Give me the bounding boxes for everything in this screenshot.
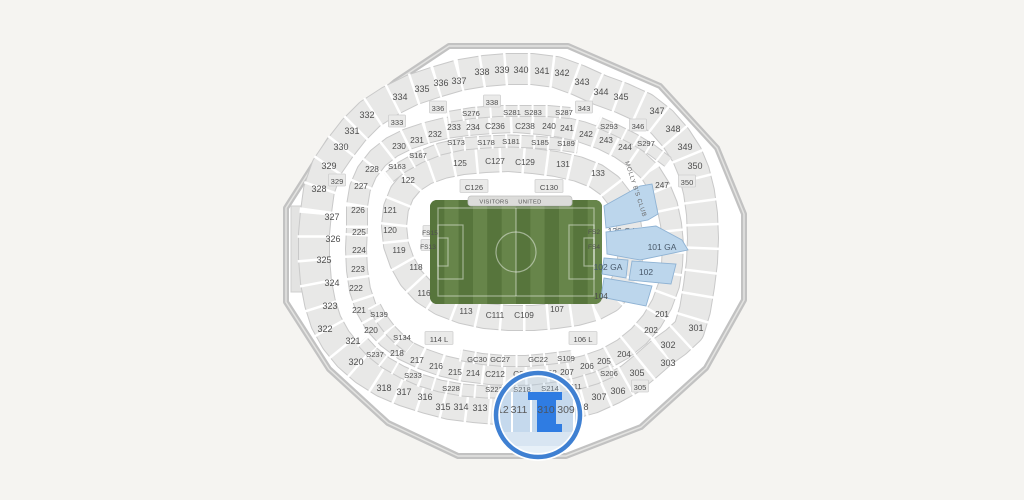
section-121[interactable]: 121 bbox=[383, 205, 397, 215]
section-345[interactable]: 345 bbox=[613, 92, 628, 102]
section-s237[interactable]: S237 bbox=[366, 350, 384, 359]
section-225[interactable]: 225 bbox=[352, 227, 366, 237]
section-104[interactable]: 104 bbox=[594, 291, 608, 301]
section-317[interactable]: 317 bbox=[396, 387, 411, 397]
section-341[interactable]: 341 bbox=[534, 66, 549, 76]
section-339[interactable]: 339 bbox=[494, 65, 509, 75]
section-315[interactable]: 315 bbox=[435, 402, 450, 412]
section-348[interactable]: 348 bbox=[665, 124, 680, 134]
section-s139[interactable]: S139 bbox=[370, 310, 388, 319]
section-s167[interactable]: S167 bbox=[409, 151, 427, 160]
section-328[interactable]: 328 bbox=[311, 184, 326, 194]
section-c238[interactable]: C238 bbox=[515, 121, 535, 131]
section-244[interactable]: 244 bbox=[618, 142, 632, 152]
section-347[interactable]: 347 bbox=[649, 106, 664, 116]
section-334[interactable]: 334 bbox=[392, 92, 407, 102]
section-206[interactable]: 206 bbox=[580, 361, 594, 371]
section-fs2[interactable]: FS2 bbox=[588, 229, 600, 236]
section-324[interactable]: 324 bbox=[324, 278, 339, 288]
section-s189[interactable]: S189 bbox=[557, 139, 575, 148]
section-c212[interactable]: C212 bbox=[485, 369, 505, 379]
section-125[interactable]: 125 bbox=[453, 158, 467, 168]
section-301[interactable]: 301 bbox=[688, 323, 703, 333]
section-204[interactable]: 204 bbox=[617, 349, 631, 359]
section-c127[interactable]: C127 bbox=[485, 156, 505, 166]
section-c236[interactable]: C236 bbox=[485, 121, 505, 131]
section-s178[interactable]: S178 bbox=[477, 138, 495, 147]
section-228[interactable]: 228 bbox=[365, 164, 379, 174]
section-343[interactable]: 343 bbox=[574, 77, 589, 87]
section-s297[interactable]: S297 bbox=[637, 139, 655, 148]
section-224[interactable]: 224 bbox=[352, 245, 366, 255]
section-106-l[interactable]: 106 L bbox=[573, 335, 592, 344]
section-202[interactable]: 202 bbox=[644, 325, 658, 335]
section-231[interactable]: 231 bbox=[410, 135, 424, 145]
section-122[interactable]: 122 bbox=[401, 175, 415, 185]
section-329[interactable]: 329 bbox=[321, 161, 336, 171]
section-234[interactable]: 234 bbox=[466, 122, 480, 132]
section-s283[interactable]: S283 bbox=[524, 108, 542, 117]
section-fs15[interactable]: FS15 bbox=[422, 230, 438, 237]
section-242[interactable]: 242 bbox=[579, 129, 593, 139]
section-207[interactable]: 207 bbox=[560, 367, 574, 377]
section-230[interactable]: 230 bbox=[392, 141, 406, 151]
section-342[interactable]: 342 bbox=[554, 68, 569, 78]
section-216[interactable]: 216 bbox=[429, 361, 443, 371]
section-335[interactable]: 335 bbox=[414, 84, 429, 94]
section-114-l[interactable]: 114 L bbox=[430, 335, 448, 344]
section-218[interactable]: 218 bbox=[390, 348, 404, 358]
section-c111[interactable]: C111 bbox=[486, 310, 505, 320]
soccer-field: VISITORSUNITED bbox=[430, 196, 602, 304]
section-s233[interactable]: S233 bbox=[404, 371, 422, 380]
section-331[interactable]: 331 bbox=[344, 126, 359, 136]
section-221[interactable]: 221 bbox=[352, 305, 366, 315]
section-205[interactable]: 205 bbox=[597, 356, 611, 366]
section-314[interactable]: 314 bbox=[453, 402, 468, 412]
section-113[interactable]: 113 bbox=[459, 306, 473, 316]
section-s109[interactable]: S109 bbox=[557, 354, 575, 363]
section-120[interactable]: 120 bbox=[383, 225, 397, 235]
section-c129[interactable]: C129 bbox=[515, 157, 535, 167]
section-322[interactable]: 322 bbox=[317, 324, 332, 334]
section-240[interactable]: 240 bbox=[542, 121, 556, 131]
section-247[interactable]: 247 bbox=[655, 180, 669, 190]
section-306[interactable]: 306 bbox=[610, 386, 625, 396]
section-318[interactable]: 318 bbox=[376, 383, 391, 393]
section-220[interactable]: 220 bbox=[364, 325, 378, 335]
section-344[interactable]: 344 bbox=[593, 87, 608, 97]
field-visitors-label: VISITORS bbox=[479, 200, 508, 206]
ga-label: 102 GA bbox=[594, 262, 623, 272]
section-307[interactable]: 307 bbox=[591, 392, 606, 402]
section-346[interactable]: 346 bbox=[632, 122, 645, 131]
section-223[interactable]: 223 bbox=[351, 264, 365, 274]
section-c130[interactable]: C130 bbox=[540, 183, 558, 192]
section-107[interactable]: 107 bbox=[550, 304, 564, 314]
section-232[interactable]: 232 bbox=[428, 129, 442, 139]
section-s293[interactable]: S293 bbox=[600, 122, 618, 131]
section-s287[interactable]: S287 bbox=[555, 108, 573, 117]
section-131[interactable]: 131 bbox=[556, 159, 570, 169]
section-349[interactable]: 349 bbox=[677, 142, 692, 152]
section-305[interactable]: 305 bbox=[634, 383, 647, 392]
section-316[interactable]: 316 bbox=[417, 392, 432, 402]
section-gc22[interactable]: GC22 bbox=[528, 355, 548, 364]
section-119[interactable]: 119 bbox=[392, 245, 406, 255]
section-336[interactable]: 336 bbox=[432, 104, 445, 113]
section-327[interactable]: 327 bbox=[324, 212, 339, 222]
section-s134[interactable]: S134 bbox=[393, 333, 411, 342]
section-133[interactable]: 133 bbox=[591, 168, 605, 178]
section-201[interactable]: 201 bbox=[655, 309, 669, 319]
section-gc27[interactable]: GC27 bbox=[490, 355, 510, 364]
section-s163[interactable]: S163 bbox=[388, 162, 406, 171]
section-fs13[interactable]: FS13 bbox=[420, 244, 436, 251]
section-330[interactable]: 330 bbox=[333, 142, 348, 152]
section-c126[interactable]: C126 bbox=[465, 183, 483, 192]
section-333[interactable]: 333 bbox=[391, 118, 404, 127]
section-s181[interactable]: S181 bbox=[502, 137, 520, 146]
section-329[interactable]: 329 bbox=[331, 177, 344, 186]
section-s228[interactable]: S228 bbox=[442, 384, 460, 393]
section-s281[interactable]: S281 bbox=[503, 108, 521, 117]
section-343[interactable]: 343 bbox=[578, 104, 591, 113]
magnified-section-310[interactable]: 310 bbox=[537, 404, 555, 416]
ga-label: 102 bbox=[639, 267, 653, 277]
section-214[interactable]: 214 bbox=[466, 368, 480, 378]
section-fs4[interactable]: FS4 bbox=[588, 244, 600, 251]
magnified-section-311[interactable]: 311 bbox=[511, 404, 528, 416]
ga-label: 101 GA bbox=[648, 242, 677, 252]
section-gc30[interactable]: GC30 bbox=[467, 355, 487, 364]
section-338[interactable]: 338 bbox=[474, 67, 489, 77]
section-332[interactable]: 332 bbox=[359, 110, 374, 120]
section-336[interactable]: 336 bbox=[433, 78, 448, 88]
section-c109[interactable]: C109 bbox=[514, 310, 534, 320]
section-321[interactable]: 321 bbox=[345, 336, 360, 346]
section-350[interactable]: 350 bbox=[687, 161, 702, 171]
section-s185[interactable]: S185 bbox=[531, 138, 549, 147]
section-243[interactable]: 243 bbox=[599, 135, 613, 145]
section-305[interactable]: 305 bbox=[629, 368, 644, 378]
field-united-label: UNITED bbox=[518, 200, 541, 206]
section-226[interactable]: 226 bbox=[351, 205, 365, 215]
section-325[interactable]: 325 bbox=[316, 255, 331, 265]
section-350[interactable]: 350 bbox=[681, 178, 694, 187]
section-320[interactable]: 320 bbox=[348, 357, 363, 367]
section-118[interactable]: 118 bbox=[409, 262, 423, 272]
section-326[interactable]: 326 bbox=[325, 234, 340, 244]
section-303[interactable]: 303 bbox=[660, 358, 675, 368]
section-233[interactable]: 233 bbox=[447, 122, 461, 132]
section-116[interactable]: 116 bbox=[417, 288, 431, 298]
section-337[interactable]: 337 bbox=[451, 76, 466, 86]
section-s276[interactable]: S276 bbox=[462, 109, 480, 118]
section-323[interactable]: 323 bbox=[322, 301, 337, 311]
section-302[interactable]: 302 bbox=[660, 340, 675, 350]
section-227[interactable]: 227 bbox=[354, 181, 368, 191]
section-222[interactable]: 222 bbox=[349, 283, 363, 293]
magnified-section-309[interactable]: 309 bbox=[557, 404, 575, 416]
section-313[interactable]: 313 bbox=[472, 403, 487, 413]
section-s206[interactable]: S206 bbox=[600, 369, 618, 378]
section-338[interactable]: 338 bbox=[486, 98, 499, 107]
section-340[interactable]: 340 bbox=[513, 65, 528, 75]
section-217[interactable]: 217 bbox=[410, 355, 424, 365]
section-s173[interactable]: S173 bbox=[447, 138, 465, 147]
stadium-seating-map: VISITORSUNITED 136 GA101 GA102 GA102 328… bbox=[0, 0, 1024, 500]
section-215[interactable]: 215 bbox=[448, 367, 462, 377]
seating-map-stage: VISITORSUNITED 136 GA101 GA102 GA102 328… bbox=[0, 0, 1024, 500]
section-241[interactable]: 241 bbox=[560, 123, 574, 133]
